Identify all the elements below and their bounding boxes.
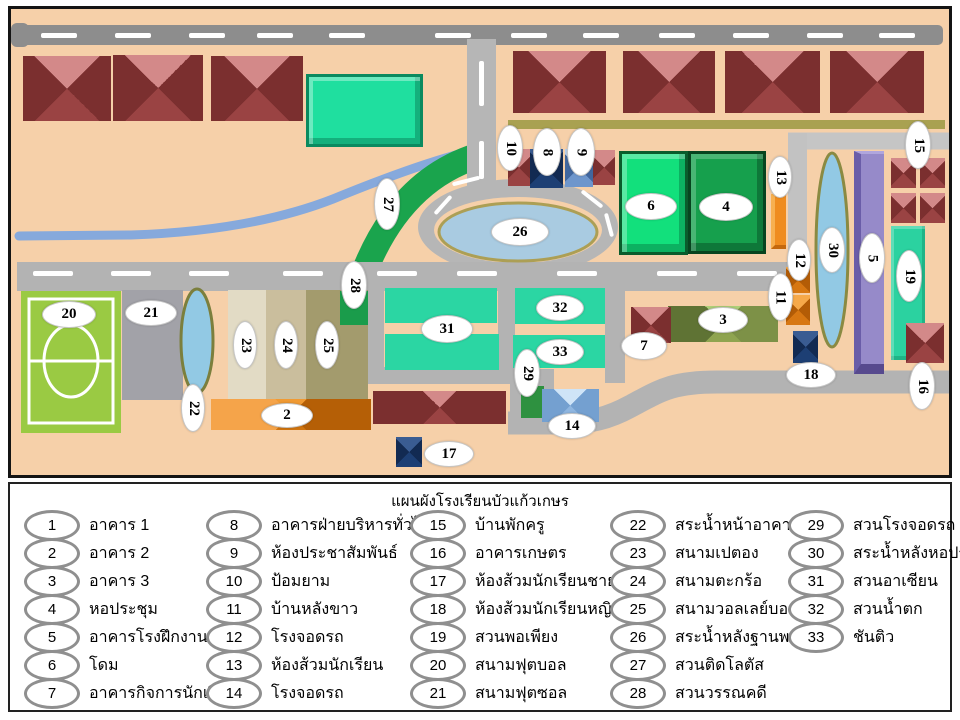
map-marker-11: 11 [768,273,793,321]
map-marker-7: 7 [621,332,667,360]
legend-item-24: 24สนามตะกร้อ [610,567,813,595]
building-small-d [920,193,945,223]
legend-item-15: 15บ้านพักครู [410,511,619,539]
legend-item-16: 16อาคารเกษตร [410,539,619,567]
map-marker-12: 12 [787,239,811,281]
legend-item-17: 17ห้องส้วมนักเรียนชาย [410,567,619,595]
building-red-roof-5 [623,51,715,113]
building-16 [906,323,944,363]
legend-item-8: 8อาคารฝ่ายบริหารทั่วไป [206,511,430,539]
building-18 [793,331,818,363]
map-marker-24: 24 [274,321,298,369]
map-marker-31: 31 [421,315,473,343]
legend-item-12: 12โรงจอดรถ [206,623,430,651]
map-marker-30: 30 [819,227,845,273]
map-marker-14: 14 [548,413,596,439]
legend-item-26: 26สระน้ำหลังฐานพระ [610,623,813,651]
building-17 [396,437,422,467]
legend-item-19: 19สวนพอเพียง [410,623,619,651]
map-marker-23: 23 [233,321,257,369]
map-marker-33: 33 [536,339,584,365]
legend-item-11: 11บ้านหลังขาว [206,595,430,623]
building-long-red [373,391,506,424]
legend-item-30: 30สระน้ำหลังหอประชุม [788,539,960,567]
legend-item-32: 32สวนน้ำตก [788,595,960,623]
map-marker-21: 21 [125,300,177,326]
building-red-roof-4 [513,51,606,113]
building-red-roof-2 [113,55,203,121]
legend-item-9: 9ห้องประชาสัมพันธ์ [206,539,430,567]
legend-item-22: 22สระน้ำหน้าอาคาร 2 [610,511,813,539]
map-marker-20: 20 [42,301,96,328]
map-marker-32: 32 [536,295,584,321]
map-marker-13: 13 [768,156,792,198]
building-13 [771,194,786,249]
school-map-page: 2 3 4 5 6 7 8 9 10 11 12 13 14 15 16 17 … [0,0,960,720]
legend-item-31: 31สวนอาเซียน [788,567,960,595]
map-marker-17: 17 [424,441,474,467]
legend-item-27: 27สวนติดโลตัส [610,651,813,679]
map-marker-8: 8 [533,128,561,176]
legend-item-21: 21สนามฟุตซอล [410,679,619,707]
campus-map: 2 3 4 5 6 7 8 9 10 11 12 13 14 15 16 17 … [8,6,952,478]
map-marker-10: 10 [497,125,523,171]
map-marker-29: 29 [514,349,540,397]
legend-column-4: 22สระน้ำหน้าอาคาร 2 23สนามเปตอง 24สนามตะ… [610,511,813,707]
map-marker-26: 26 [491,218,549,246]
map-marker-5: 5 [859,233,885,283]
legend-item-13: 13ห้องส้วมนักเรียน [206,651,430,679]
map-marker-15: 15 [905,121,931,169]
legend-item-20: 20สนามฟุตบอล [410,651,619,679]
legend-item-28: 28สวนวรรณคดี [610,679,813,707]
legend-column-2: 8อาคารฝ่ายบริหารทั่วไป 9ห้องประชาสัมพันธ… [206,511,430,707]
legend-column-3: 15บ้านพักครู 16อาคารเกษตร 17ห้องส้วมนักเ… [410,511,619,707]
map-marker-27: 27 [374,178,400,230]
legend-item-18: 18ห้องส้วมนักเรียนหญิง [410,595,619,623]
map-marker-28: 28 [341,261,367,309]
main-road [17,262,807,291]
building-red-roof-3 [211,56,303,121]
building-red-roof-1 [23,56,111,121]
legend-item-29: 29สวนโรงจอดรถ [788,511,960,539]
legend-item-25: 25สนามวอลเลย์บอล [610,595,813,623]
legend-item-33: 33ชันติว [788,623,960,651]
pond-22 [181,289,213,393]
map-marker-22: 22 [181,384,205,432]
map-marker-25: 25 [315,321,339,369]
legend-column-5: 29สวนโรงจอดรถ 30สระน้ำหลังหอประชุม 31สวน… [788,511,960,651]
map-marker-3: 3 [698,307,748,333]
legend-item-23: 23สนามเปตอง [610,539,813,567]
building-red-roof-6 [725,51,820,113]
legend-item-14: 14โรงจอดรถ [206,679,430,707]
map-marker-2: 2 [261,403,313,428]
map-marker-19: 19 [896,250,922,302]
building-small-c [891,193,916,223]
legend-item-10: 10ป้อมยาม [206,567,430,595]
map-marker-4: 4 [699,193,753,221]
legend-panel: แผนผังโรงเรียนบัวแก้วเกษร 1อาคาร 1 2อาคา… [8,482,952,712]
map-marker-18: 18 [786,362,836,388]
map-marker-16: 16 [909,362,935,410]
map-marker-6: 6 [625,193,677,220]
building-red-roof-7 [830,51,924,113]
map-marker-9: 9 [567,128,595,176]
khaki-path [508,120,945,129]
building-teal-hall [306,74,423,147]
building-small-red [593,150,615,185]
